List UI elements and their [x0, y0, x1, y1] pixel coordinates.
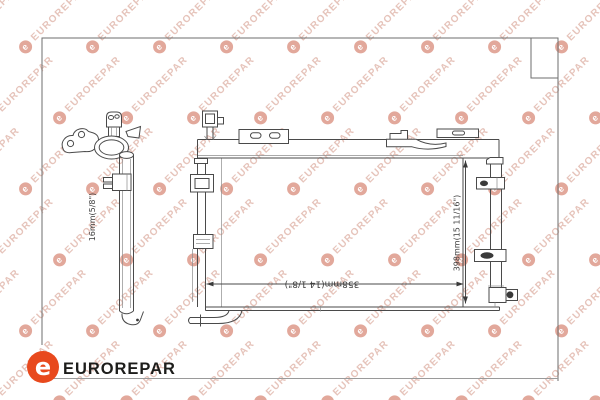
dim-depth-label: 16mm(5/8") [88, 193, 97, 242]
right-drier [475, 158, 518, 308]
strap-bracket [387, 139, 447, 149]
dim-height: 398mm(15 11/16") [453, 161, 468, 304]
left-bracket-lower [194, 235, 214, 249]
technical-drawing: 16mm(5/8") [0, 0, 600, 400]
dim-width: 358mm(14 1/8") [207, 279, 464, 289]
dim-height-label: 398mm(15 11/16") [453, 195, 462, 272]
top-tab [390, 131, 408, 140]
side-bracket-flange [62, 129, 98, 153]
side-connector-block [104, 174, 132, 191]
top-bracket-right [437, 129, 479, 138]
top-connector [107, 112, 122, 127]
flag-tab [126, 127, 141, 139]
page: { "watermark": { "text": "EUROREPAR", "l… [0, 0, 600, 400]
frame-corner-box [531, 38, 558, 78]
side-view: 16mm(5/8") [62, 112, 143, 325]
bottom-left-pipe [189, 311, 243, 327]
top-bracket-left [239, 130, 289, 144]
dim-width-label: 358mm(14 1/8") [285, 279, 360, 289]
front-view: 358mm(14 1/8") 398mm(15 11/16") [189, 111, 518, 327]
top-left-fitting [203, 111, 224, 140]
left-bracket-upper [191, 175, 214, 193]
bottom-right-fitting [488, 286, 518, 307]
